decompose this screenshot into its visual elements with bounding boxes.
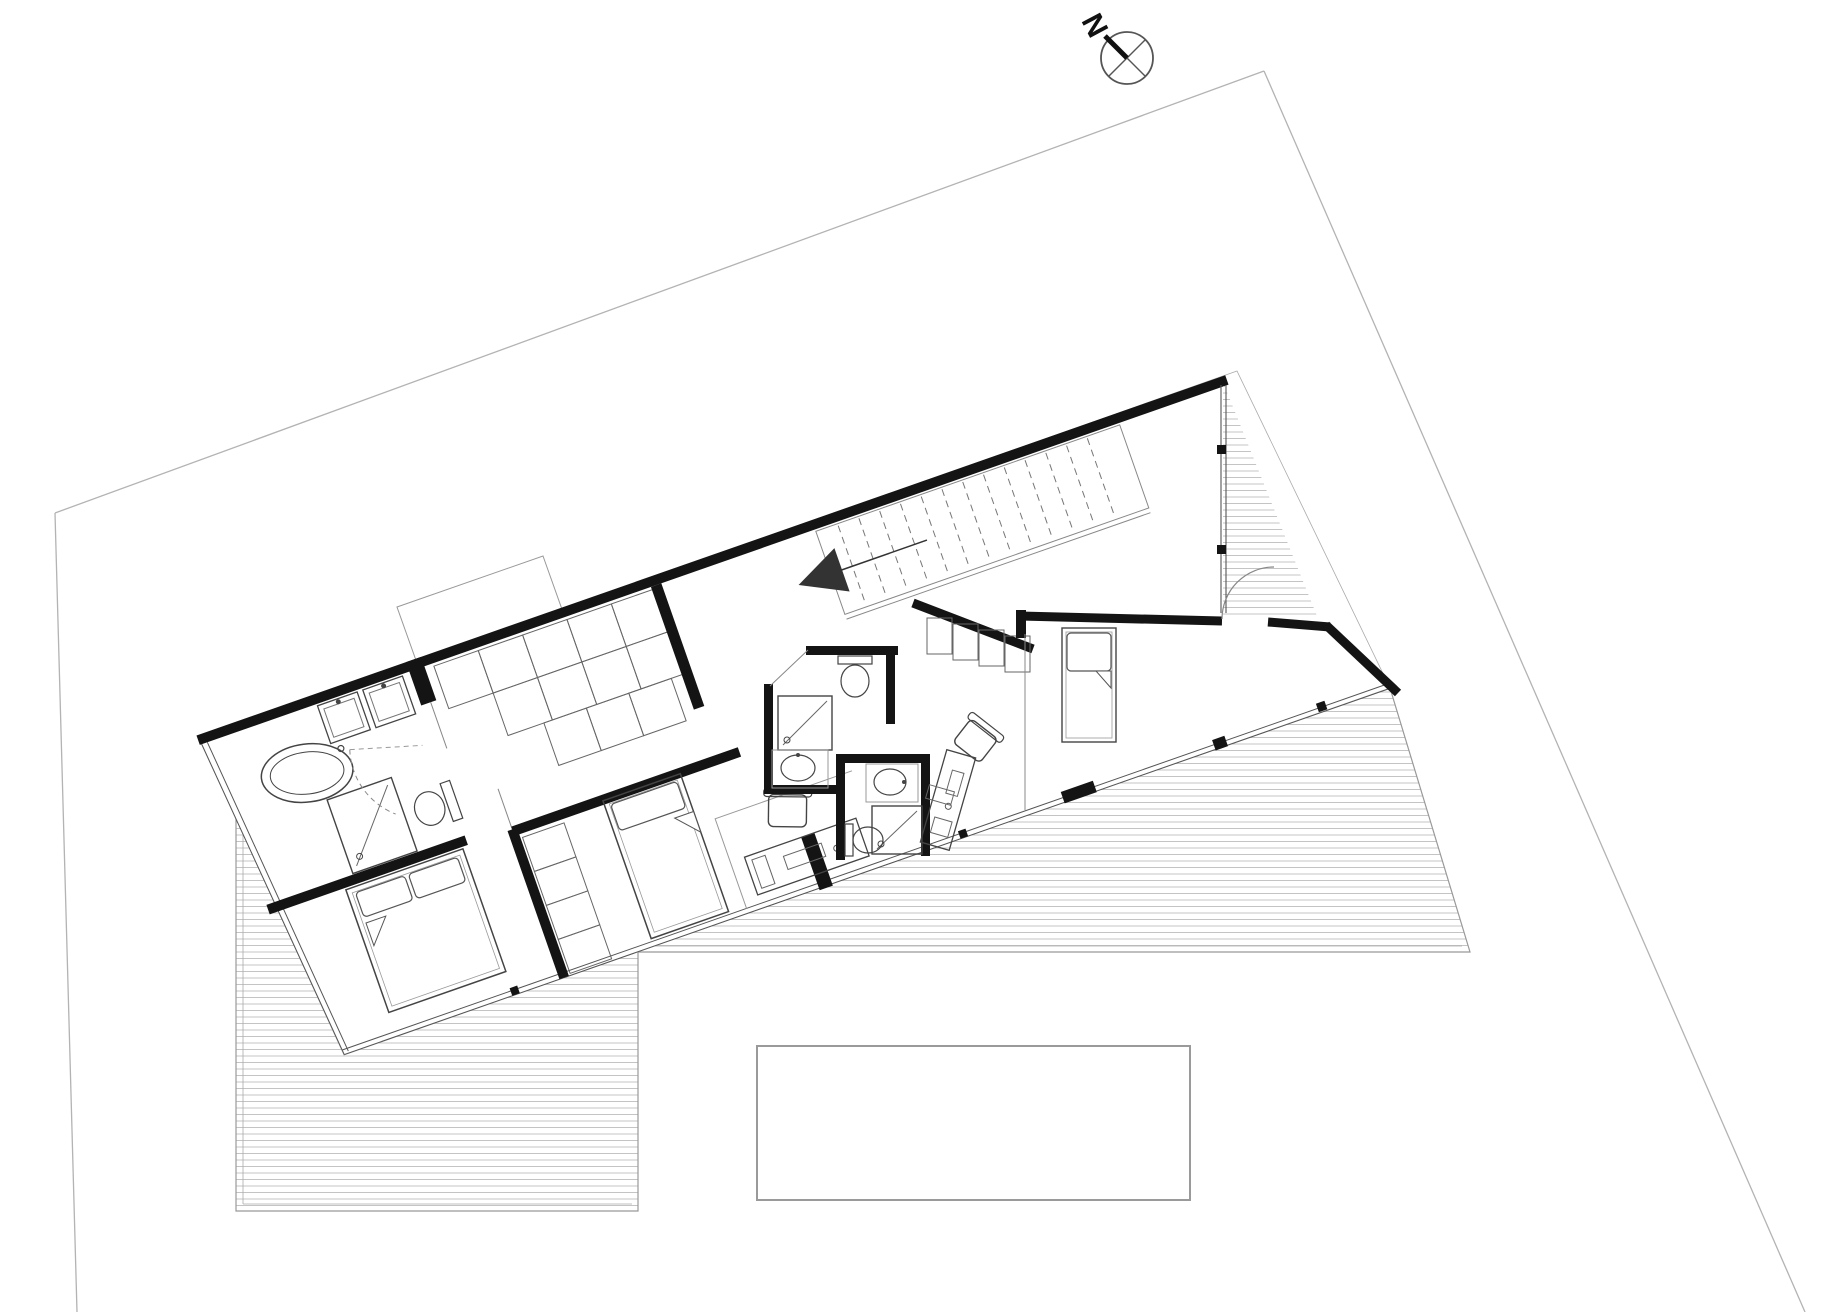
bathroom-wall [836,763,845,860]
floor-plan-drawing: N [0,0,1840,1312]
basin-faucet [796,753,800,757]
property-line-west [55,513,77,1312]
bathroom-wall [806,646,898,655]
entry-wall [1020,616,1222,621]
wall-stub [1016,610,1026,638]
entry-wall [1268,622,1330,627]
site-plan [55,71,1805,1312]
swimming-pool [757,1046,1190,1200]
bathroom-wall [836,754,930,763]
glass-mullion [1217,445,1226,454]
bathroom-wall [886,646,895,724]
north-compass: N [1075,8,1153,84]
basin-faucet [902,780,906,784]
glass-mullion [1217,545,1226,554]
compass-north-bar [1105,36,1127,58]
bathroom-wall [764,785,844,794]
floor-plan-page: N [0,0,1840,1312]
